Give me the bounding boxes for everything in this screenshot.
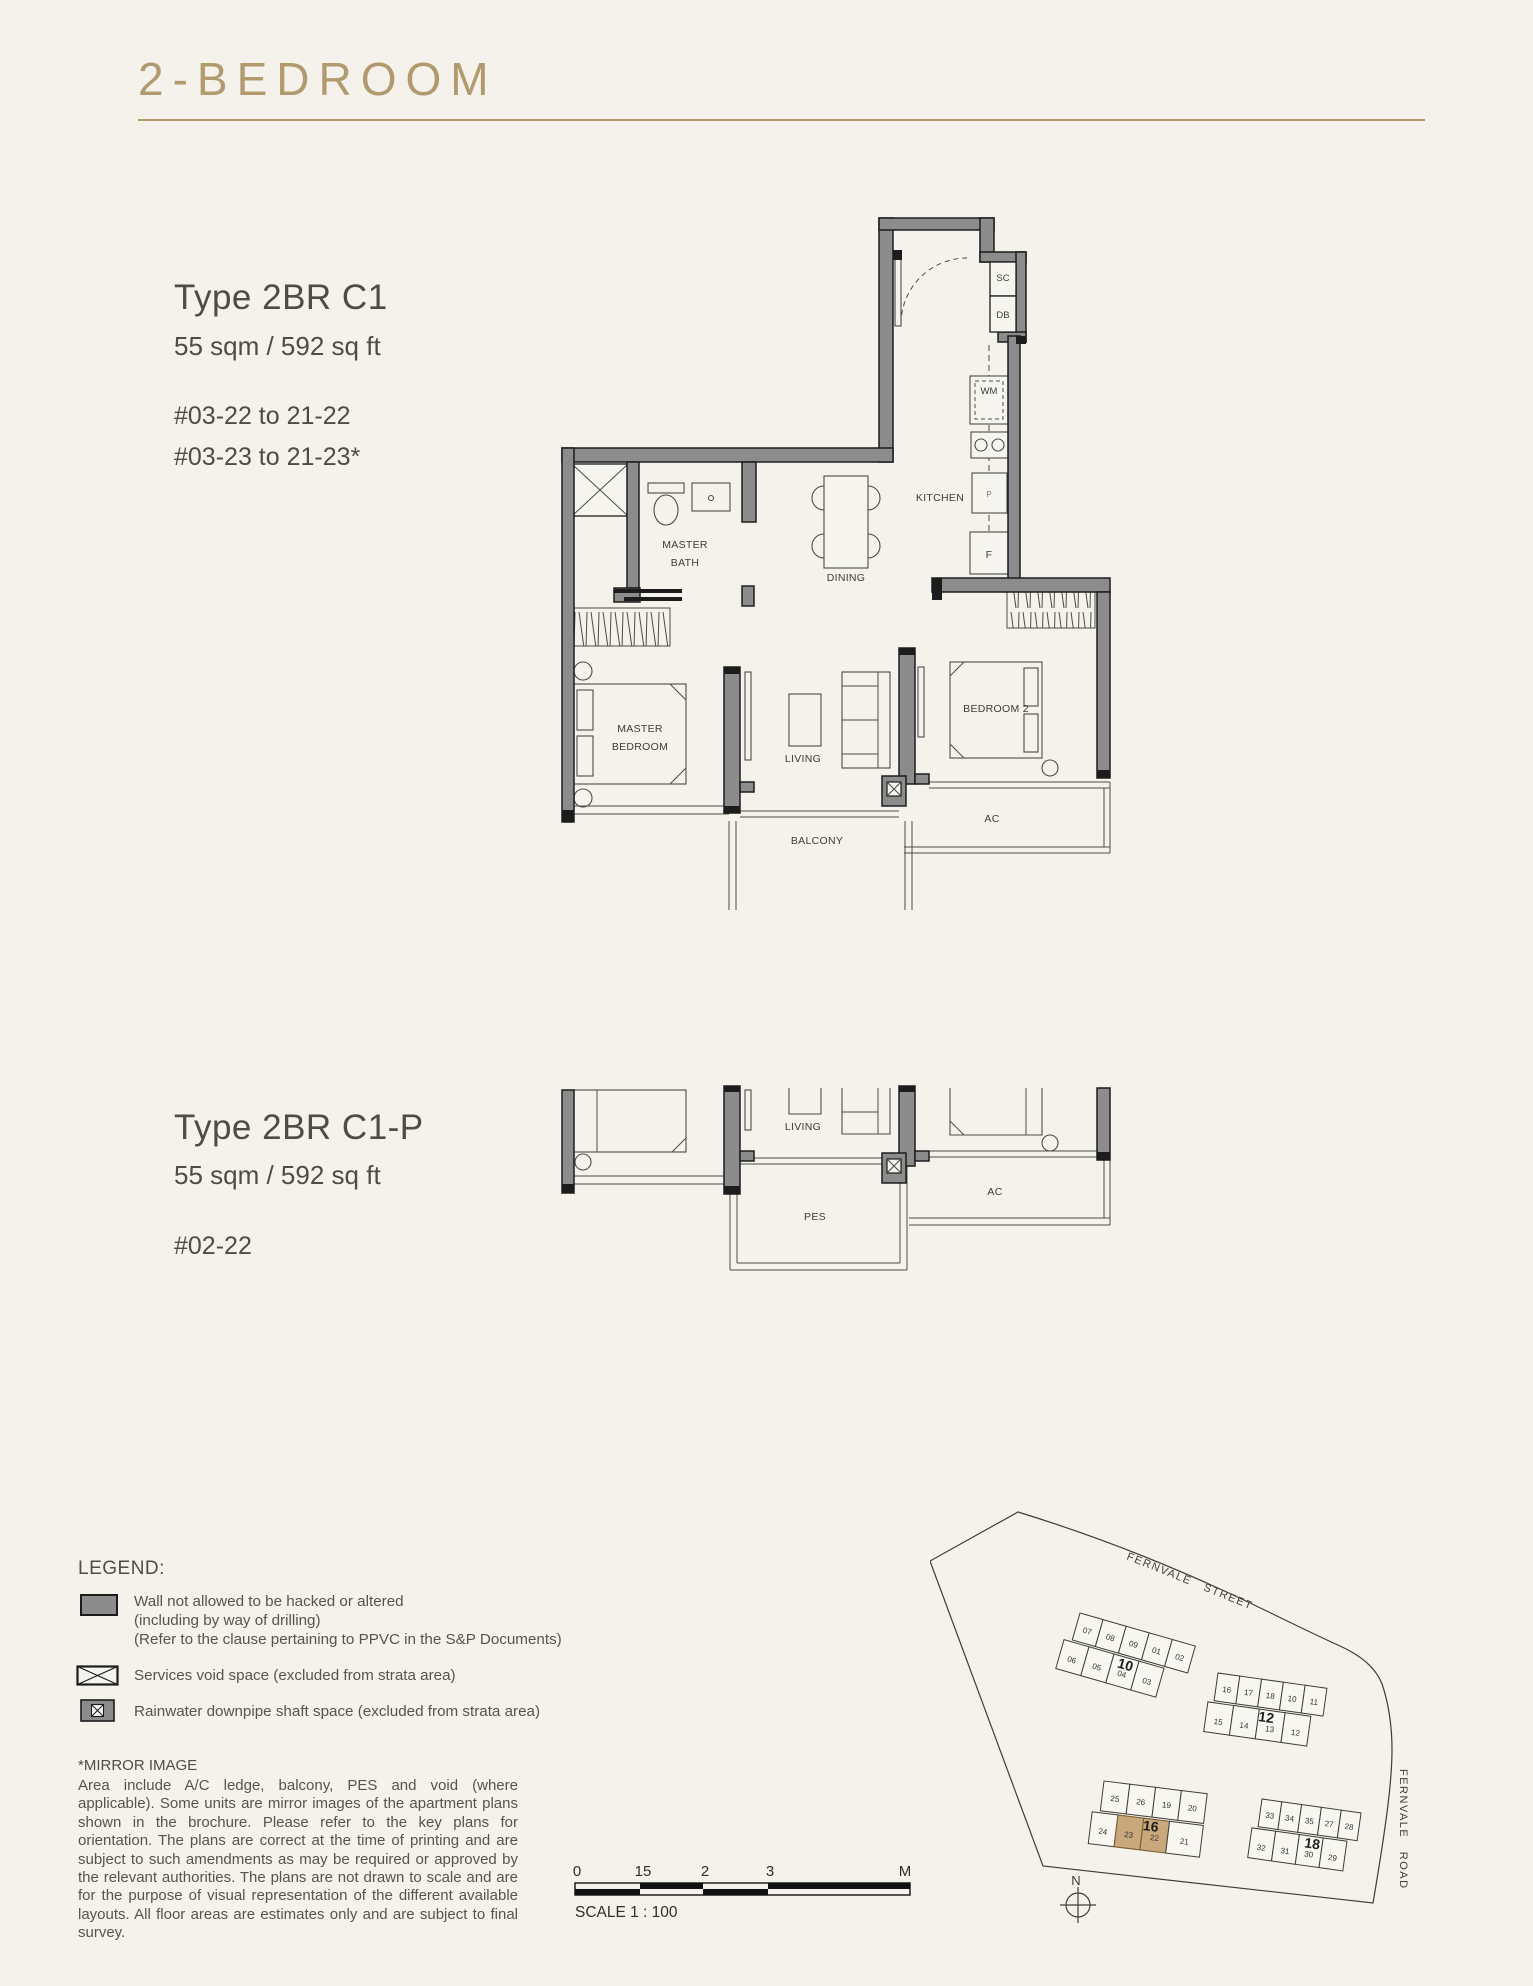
legend-rain-text: Rainwater downpipe shaft space (excluded…: [134, 1702, 540, 1721]
ac-ledge-lines: [909, 1151, 1110, 1225]
coffee-table-icon: [789, 694, 821, 746]
block-number: 16: [1142, 1817, 1160, 1835]
legend-wall-swatch: [80, 1594, 118, 1616]
site-block-10: 07 08 09 01 02 06 05 04 03 10: [1056, 1611, 1196, 1704]
scale-label: SCALE 1 : 100: [575, 1904, 678, 1921]
rainwater-downpipe: [887, 1159, 901, 1173]
block-number: 12: [1257, 1708, 1275, 1726]
unit-number: 27: [1324, 1819, 1335, 1829]
unit-number: 12: [1290, 1728, 1301, 1738]
sofa-icon: [842, 1088, 890, 1134]
scale-tick: 3: [766, 1863, 774, 1880]
scale-tick: 0: [573, 1863, 581, 1880]
legend-line: (including by way of drilling): [134, 1611, 562, 1630]
label-master-bedroom: BEDROOM: [612, 741, 668, 753]
legend-wall-text: Wall not allowed to be hacked or altered…: [134, 1592, 562, 1649]
label-master-bath: BATH: [671, 557, 699, 569]
label-pes: PES: [804, 1211, 826, 1223]
label-db: DB: [996, 310, 1009, 321]
label-ac: AC: [984, 813, 999, 825]
label-dining: DINING: [827, 572, 866, 584]
bed-icon: [950, 1088, 1042, 1135]
unit-c1-type: Type 2BR C1: [174, 278, 388, 318]
page-title: 2-BEDROOM: [138, 52, 498, 106]
fragment-furniture: [572, 1088, 1058, 1184]
unit-c1-stack-1: #03-22 to 21-22: [174, 396, 360, 437]
unit-number: 16: [1222, 1685, 1233, 1695]
rainwater-downpipe: [887, 782, 901, 796]
master-bedroom-furniture: [572, 608, 729, 814]
unit-number: 15: [1213, 1717, 1224, 1727]
unit-number: 18: [1265, 1691, 1276, 1701]
disclaimer-body: Area include A/C ledge, balcony, PES and…: [78, 1777, 518, 1943]
toilet-icon: [654, 495, 678, 525]
site-block-16: 25 26 19 20 24 23 22 21 16: [1088, 1780, 1207, 1857]
unit-number: 34: [1285, 1813, 1296, 1823]
unit-number: 28: [1344, 1822, 1355, 1832]
street-label: FERNVALE STREET: [1125, 1551, 1255, 1613]
label-living: LIVING: [785, 1121, 821, 1133]
floorplan-c1: SC DB WM P F KITCHEN MASTER BATH DINING …: [552, 170, 1132, 910]
legend-heading: LEGEND:: [78, 1558, 165, 1580]
unit-c1p-type: Type 2BR C1-P: [174, 1108, 424, 1148]
coffee-table-icon: [789, 1088, 821, 1114]
north-label: N: [1071, 1873, 1080, 1888]
unit-number: 10: [1287, 1694, 1298, 1704]
wardrobe-icon: [1007, 592, 1095, 628]
bedroom2-furniture: [918, 592, 1095, 776]
site-block-18: 33 34 35 27 28 32 31 30 29 18: [1248, 1798, 1361, 1872]
dining-table-icon: [824, 476, 868, 568]
floorplan-c1p: LIVING PES AC: [552, 1058, 1132, 1313]
kitchen-fixtures: [970, 345, 1008, 575]
unit-number: 31: [1280, 1846, 1291, 1856]
north-arrow-icon: N: [1060, 1873, 1096, 1923]
scale-tick: 2: [701, 1863, 709, 1880]
unit-number: 19: [1162, 1800, 1172, 1810]
entry-door: [895, 256, 967, 326]
scale-bar-segments: [575, 1883, 910, 1895]
label-f: F: [986, 549, 993, 561]
sink-icon: [692, 483, 730, 511]
unit-c1-area: 55 sqm / 592 sq ft: [174, 331, 381, 362]
legend-line: Wall not allowed to be hacked or altered: [134, 1592, 562, 1611]
wardrobe-icon: [574, 608, 670, 646]
unit-number: 32: [1256, 1843, 1267, 1853]
living-furniture: [740, 672, 899, 817]
unit-number: 17: [1243, 1688, 1254, 1698]
label-ac: AC: [987, 1186, 1002, 1198]
unit-c1p-area: 55 sqm / 592 sq ft: [174, 1160, 381, 1191]
label-master-bedroom: MASTER: [617, 723, 663, 735]
unit-number: 21: [1179, 1837, 1189, 1847]
disclaimer-heading: *MIRROR IMAGE: [78, 1757, 197, 1774]
unit-number: 20: [1187, 1803, 1197, 1813]
rainwater-swatch-icon: [80, 1699, 116, 1723]
legend-line: (Refer to the clause pertaining to PPVC …: [134, 1630, 562, 1649]
dining-furniture: [812, 476, 880, 568]
legend-void-text: Services void space (excluded from strat…: [134, 1666, 456, 1685]
door-swing-icon: [901, 258, 967, 324]
unit-number: 26: [1136, 1797, 1146, 1807]
wall-swatch-icon: [80, 1594, 118, 1616]
title-divider: [138, 119, 1425, 121]
label-wm: WM: [981, 386, 998, 397]
site-block-12: 16 17 18 10 11 15 14 13 12 12: [1204, 1672, 1327, 1748]
unit-number: 29: [1327, 1853, 1338, 1863]
label-bedroom2: BEDROOM 2: [963, 703, 1029, 715]
block-number: 18: [1303, 1834, 1321, 1852]
label-p: P: [986, 490, 991, 499]
unit-number-highlighted: 23: [1124, 1830, 1134, 1840]
scale-tick: 15: [635, 1863, 652, 1880]
bed-icon: [572, 1090, 686, 1152]
tv-console-icon: [745, 672, 751, 760]
unit-c1-stacks: #03-22 to 21-22 #03-23 to 21-23*: [174, 396, 360, 478]
label-living: LIVING: [785, 753, 821, 765]
unit-c1p-stacks: #02-22: [174, 1226, 252, 1267]
label-sc: SC: [996, 273, 1009, 284]
walls: [562, 1086, 1110, 1194]
ac-ledge-lines: [904, 782, 1110, 853]
site-plan: FERNVALE STREET FERNVALE ROAD 07 08 09 0…: [930, 1485, 1520, 1985]
unit-number: 35: [1304, 1816, 1315, 1826]
road-label: FERNVALE ROAD: [1397, 1769, 1409, 1890]
unit-number: 24: [1098, 1827, 1108, 1837]
door-leaf-icon: [895, 256, 901, 326]
services-void-swatch-icon: [76, 1665, 120, 1687]
unit-c1-stack-2: #03-23 to 21-23*: [174, 437, 360, 478]
scale-tick: M: [899, 1863, 912, 1880]
bath-fixtures: [572, 464, 730, 525]
unit-number: 25: [1110, 1794, 1120, 1804]
label-master-bath: MASTER: [662, 539, 708, 551]
scale-bar: 0 15 2 3 M SCALE 1 : 100: [565, 1843, 925, 1928]
unit-c1p-stack-1: #02-22: [174, 1226, 252, 1267]
label-kitchen: KITCHEN: [916, 492, 964, 504]
unit-number: 14: [1239, 1721, 1250, 1731]
label-balcony: BALCONY: [791, 835, 843, 847]
brochure-page: 2-BEDROOM Type 2BR C1 55 sqm / 592 sq ft…: [0, 0, 1533, 1986]
unit-number: 33: [1265, 1811, 1276, 1821]
